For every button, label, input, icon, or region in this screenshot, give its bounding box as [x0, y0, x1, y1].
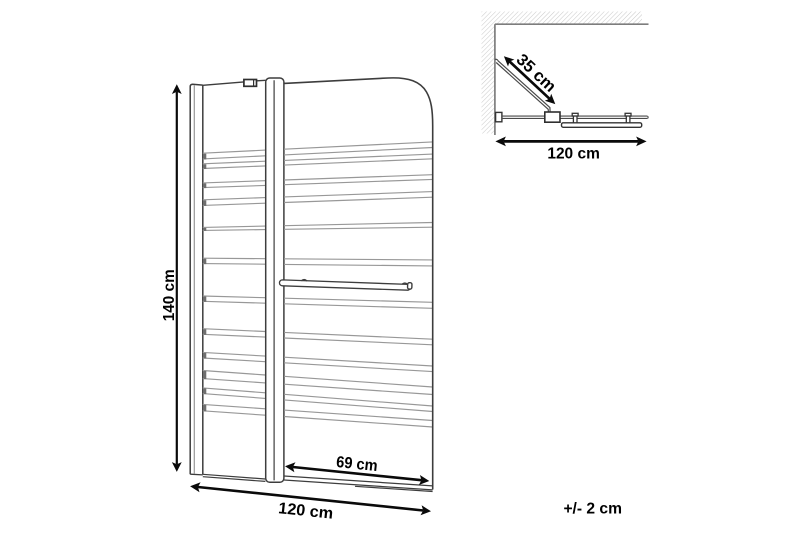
- svg-text:35 cm: 35 cm: [513, 51, 560, 96]
- svg-text:+/- 2 cm: +/- 2 cm: [563, 501, 622, 518]
- svg-text:120 cm: 120 cm: [277, 500, 333, 523]
- svg-text:140 cm: 140 cm: [161, 269, 178, 321]
- svg-text:120 cm: 120 cm: [547, 146, 600, 163]
